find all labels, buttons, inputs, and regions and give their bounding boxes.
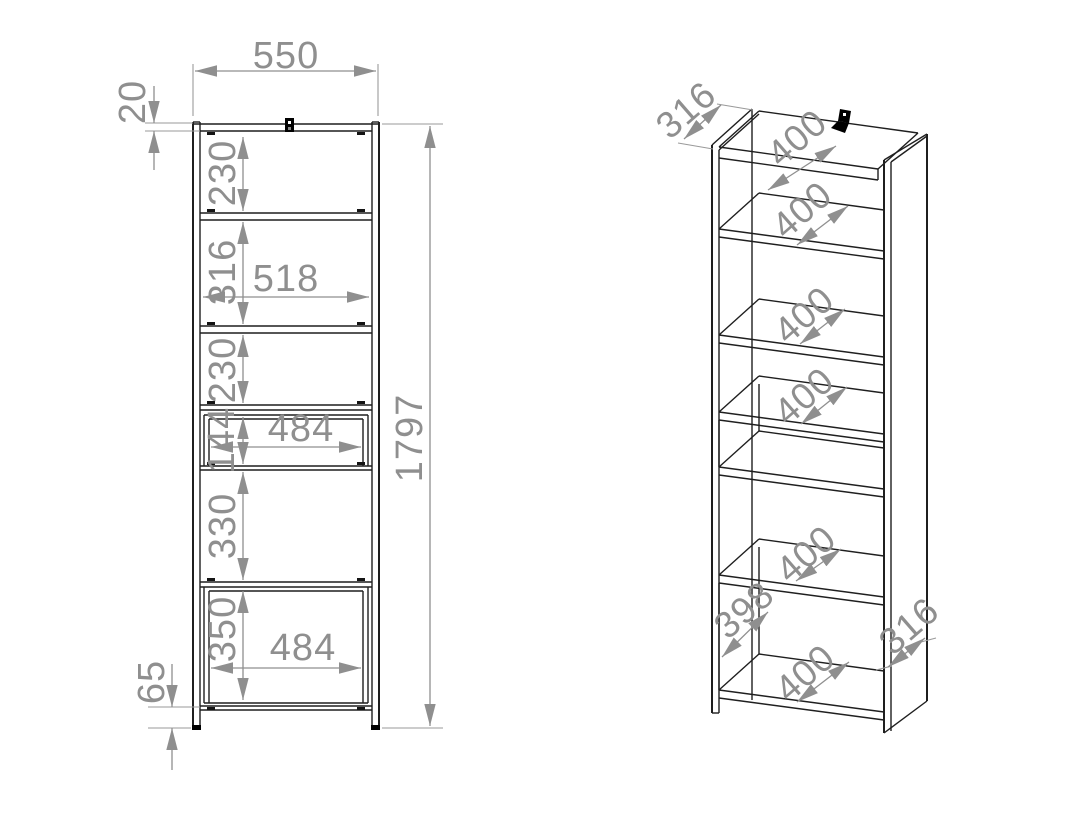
dim-400-top: 400 bbox=[759, 101, 836, 190]
dim-350-label: 350 bbox=[202, 596, 244, 662]
dim-398: 398 bbox=[706, 573, 782, 657]
dim-230-top: 230 bbox=[202, 137, 244, 211]
dim-330: 330 bbox=[202, 472, 244, 580]
dim-1797: 1797 bbox=[382, 124, 443, 728]
dim-1797-label: 1797 bbox=[389, 394, 431, 483]
dim-484-drawer-label: 484 bbox=[268, 408, 334, 450]
dim-400-shelf5-label: 400 bbox=[768, 517, 844, 590]
dim-230-mid-label: 230 bbox=[202, 337, 244, 403]
dim-20-label: 20 bbox=[112, 80, 154, 124]
dim-400-shelf3-label: 400 bbox=[766, 278, 842, 351]
wall-bracket-icon bbox=[285, 118, 294, 132]
front-left-foot bbox=[192, 725, 201, 730]
dim-144: 144 bbox=[201, 407, 243, 473]
dim-484-bottom-label: 484 bbox=[270, 627, 336, 669]
dim-550: 550 bbox=[193, 35, 378, 116]
dim-400-shelf4: 400 bbox=[766, 359, 847, 432]
technical-drawing-canvas: 550 20 1797 230 316 230 bbox=[0, 0, 1090, 818]
dim-65: 65 bbox=[131, 660, 200, 770]
dim-230-top-label: 230 bbox=[202, 140, 244, 206]
dim-316-front: 316 bbox=[202, 222, 244, 324]
dim-316-right-label: 316 bbox=[871, 589, 947, 662]
dim-550-label: 550 bbox=[253, 35, 319, 77]
front-view: 550 20 1797 230 316 230 bbox=[112, 35, 443, 770]
front-right-foot bbox=[371, 725, 380, 730]
dim-400-shelf4-label: 400 bbox=[766, 359, 842, 432]
dim-400-shelf3: 400 bbox=[766, 278, 845, 351]
dim-400-shelf5: 400 bbox=[768, 517, 844, 590]
dim-316-top: 316 bbox=[648, 73, 753, 149]
dim-316-top-label: 316 bbox=[648, 73, 724, 146]
dim-20: 20 bbox=[112, 80, 200, 170]
iso-view: 316 400 400 400 400 400 400 bbox=[648, 73, 947, 733]
dim-398-label: 398 bbox=[706, 573, 782, 646]
dim-230-mid: 230 bbox=[202, 335, 244, 403]
dim-144-label: 144 bbox=[201, 407, 243, 473]
dim-518-label: 518 bbox=[253, 258, 319, 300]
dim-316-front-label: 316 bbox=[202, 239, 244, 305]
dim-65-label: 65 bbox=[131, 660, 173, 704]
dim-400-shelf2-label: 400 bbox=[764, 173, 840, 246]
dim-316-right: 316 bbox=[871, 589, 947, 670]
dim-400-bottom-label: 400 bbox=[767, 636, 843, 709]
dim-330-label: 330 bbox=[202, 493, 244, 559]
